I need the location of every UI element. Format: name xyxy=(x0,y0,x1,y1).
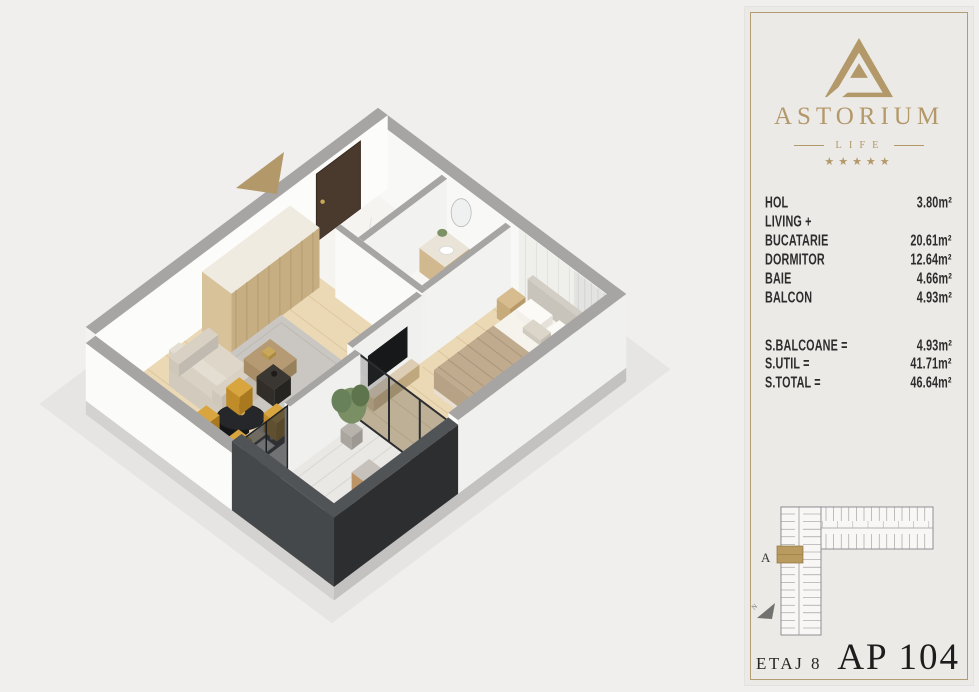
total-row-util: S.UTIL = 41.71m² xyxy=(765,355,952,374)
room-row-balcon: BALCON 4.93m² xyxy=(765,288,952,307)
logo xyxy=(745,35,973,108)
building-site-plan: A N xyxy=(751,500,963,652)
left-rule xyxy=(794,145,824,146)
building-floor-plan-thumbnail xyxy=(751,500,963,652)
total-row-balcoane: S.BALCOANE = 4.93m² xyxy=(765,336,952,355)
room-row-living: LIVING + xyxy=(765,212,952,231)
room-areas-list: HOL 3.80m² LIVING + BUCATARIE 20.61m² DO… xyxy=(765,193,952,307)
room-row-hol: HOL 3.80m² xyxy=(765,193,952,212)
total-row-total: S.TOTAL = 46.64m² xyxy=(765,373,952,392)
astorium-triangle-logo-icon xyxy=(822,35,896,103)
brand-subtitle: LIFE xyxy=(832,140,885,151)
totals-list: S.BALCOANE = 4.93m² S.UTIL = 41.71m² S.T… xyxy=(765,336,952,392)
brand-subtitle-row: LIFE xyxy=(745,140,973,151)
brand-name: ASTORIUM xyxy=(745,103,973,131)
room-row-bucatarie: BUCATARIE 20.61m² xyxy=(765,231,952,250)
right-rule xyxy=(894,145,924,146)
room-row-baie: BAIE 4.66m² xyxy=(765,269,952,288)
apartment-number: AP 104 xyxy=(837,636,960,679)
floorplan-isometric-render xyxy=(0,0,745,692)
five-stars-icon: ★★★★★ xyxy=(745,155,973,168)
floor-label: ETAJ 8 xyxy=(756,654,822,674)
info-panel: ASTORIUM LIFE ★★★★★ HOL 3.80m² LIVING + … xyxy=(745,7,973,685)
room-row-dormitor: DORMITOR 12.64m² xyxy=(765,250,952,269)
floorplan-3d xyxy=(0,0,745,692)
wing-label: A xyxy=(761,550,770,566)
